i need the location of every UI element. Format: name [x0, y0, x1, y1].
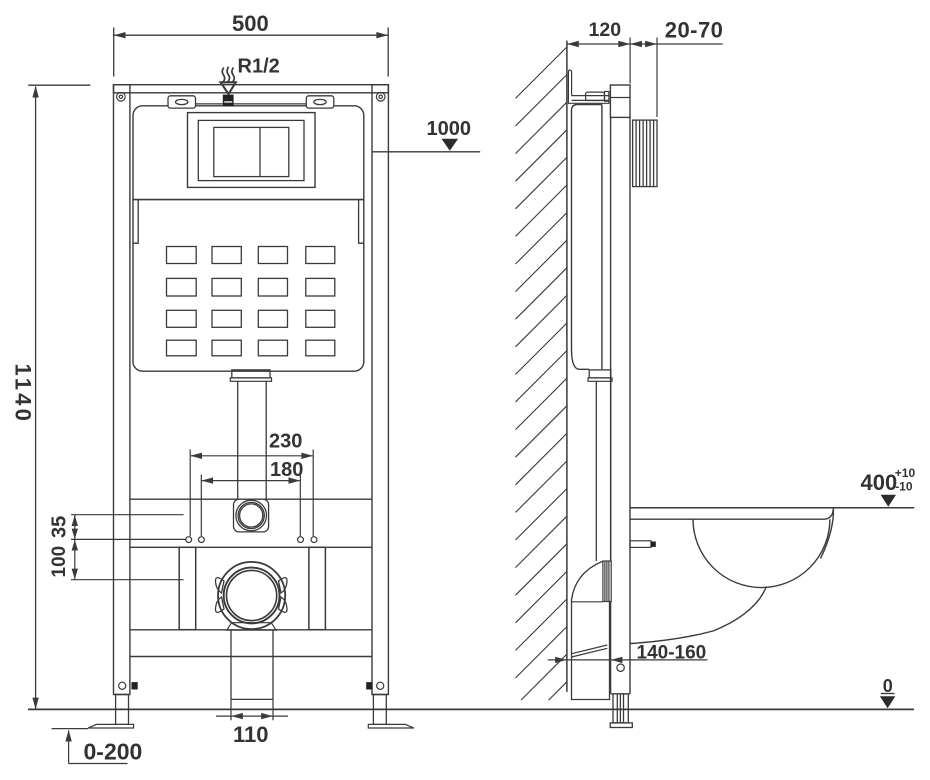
svg-text:500: 500 [232, 11, 269, 36]
svg-text:180: 180 [270, 459, 303, 481]
svg-text:35: 35 [49, 516, 71, 538]
svg-text:0-200: 0-200 [84, 739, 143, 765]
svg-text:230: 230 [269, 431, 302, 453]
svg-text:1140: 1140 [10, 364, 35, 425]
svg-text:140-160: 140-160 [637, 643, 707, 664]
svg-text:110: 110 [233, 722, 269, 747]
svg-text:20-70: 20-70 [665, 18, 724, 43]
svg-text:120: 120 [589, 19, 622, 41]
svg-text:R1/2: R1/2 [238, 56, 280, 78]
svg-text:+10: +10 [895, 466, 916, 480]
svg-text:100: 100 [49, 546, 70, 578]
svg-text:1000: 1000 [427, 118, 472, 140]
svg-text:-10: -10 [895, 480, 913, 494]
svg-text:400: 400 [861, 470, 898, 495]
